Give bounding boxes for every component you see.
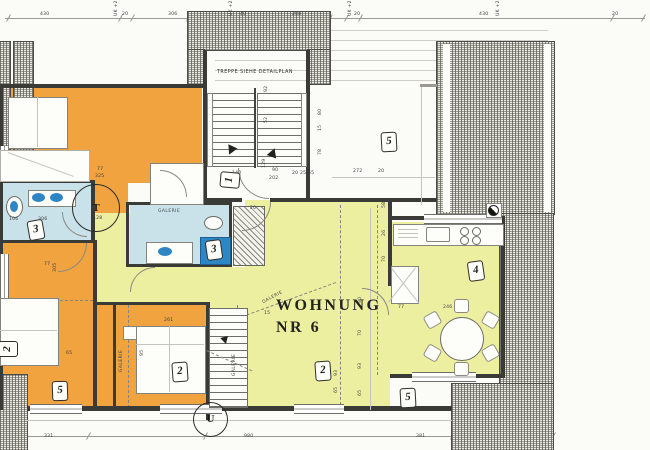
dim-label: 980 [244,434,253,439]
floor-plan: 122233455543020306402082043020UK +2.50UK… [0,0,650,450]
dim-label: 305 [53,263,58,272]
dim-label: 381 [416,434,425,439]
dim-label: 52 [264,117,269,123]
dim-label: 70 [382,256,387,262]
dim-label: 331 [44,434,53,439]
section-marker-t: T [72,184,120,232]
dim-label: 70 [358,330,363,336]
room-tag-5: 5 [52,381,69,402]
dim-label: 40 [240,12,246,17]
dim-label: 272 [353,169,362,174]
dim-label: 430 [40,12,49,17]
galerie-label: GALERIE [120,350,125,372]
dim-label: UK +2.50 [114,0,119,16]
galerie-label: GALERIE [158,210,180,215]
dim-label: 306 [168,12,177,17]
room-tag-1: 1 [219,171,240,189]
dim-label: 65 [308,171,314,176]
dim-label: 20 [122,12,128,17]
room-tag-2: 2 [314,360,331,381]
dim-label: 77 [44,262,50,267]
dim-label: 325 [95,174,104,179]
dim-label: 80 [318,109,323,115]
dim-label: UK +2.50 [348,0,353,16]
room-tag-3: 3 [205,239,224,261]
dim-label: 93 [358,363,363,369]
dim-label: 20 [292,171,298,176]
dim-label: 90 [272,168,278,173]
dim-label: UK +2.50 [229,0,234,16]
dim-label: 65 [358,390,363,396]
dim-label: 90 [358,297,363,303]
room-tag-2: 2 [171,361,188,382]
dim-label: 25 [300,171,306,176]
dim-label: 77 [398,305,404,310]
apartment-name-line2: NR 6 [276,319,321,337]
stairs-note: TREPPE SIEHE DETAILPLAN [217,70,293,75]
dim-label: 208 [292,12,301,17]
room-tag-4: 4 [467,260,486,282]
dim-label: 65 [66,351,72,356]
dim-label: 129 [262,159,267,168]
dim-label: 93 [334,370,339,376]
room-tag-5: 5 [380,132,397,153]
dim-label: 77 [97,167,103,172]
dim-label: UK +2.50 [496,0,501,16]
dim-label: 20 [612,12,618,17]
room-tag-3: 3 [26,219,45,241]
dim-label: 26 [382,230,387,236]
dim-label: 95 [140,350,145,356]
dim-label: 430 [479,12,488,17]
galerie-label: GALERIE [233,354,238,376]
dim-label: 246 [443,305,452,310]
apartment-name-line1: WOHNUNG [276,297,382,315]
room-tag-5: 5 [399,388,416,409]
dim-label: 65 [334,387,339,393]
dim-label: 15 [264,311,270,316]
dim-label: 58 [382,202,387,208]
dim-label: 20 [250,206,256,211]
dim-label: 15 [318,125,323,131]
section-marker-u: U [193,402,228,437]
dim-label: 20 [354,12,360,17]
dim-label: 20 [378,169,384,174]
room-tag-2: 2 [0,341,18,357]
dim-label: 202 [269,176,278,181]
dim-label: 261 [164,318,173,323]
dim-label: 106 [9,217,18,222]
dim-label: 92 [264,86,269,92]
dim-label: 78 [318,149,323,155]
